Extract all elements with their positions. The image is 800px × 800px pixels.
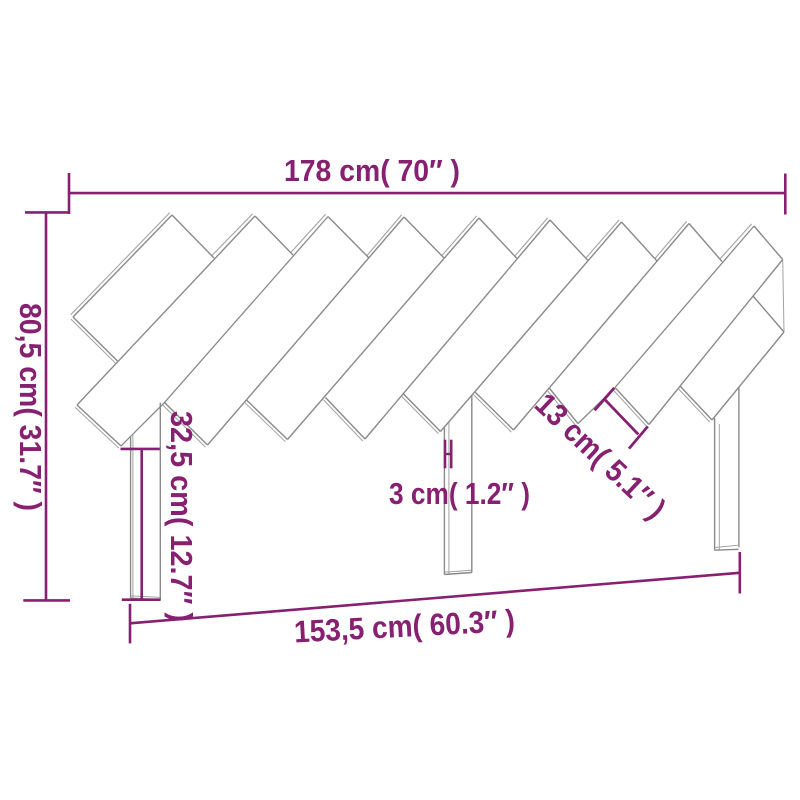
svg-text:80,5 cm( 31.7″ ): 80,5 cm( 31.7″ ) [13, 303, 48, 511]
svg-text:3 cm( 1.2″ ): 3 cm( 1.2″ ) [389, 476, 530, 511]
svg-text:32,5 cm( 12.7″ ): 32,5 cm( 12.7″ ) [164, 411, 199, 622]
svg-text:178 cm( 70″ ): 178 cm( 70″ ) [284, 153, 460, 188]
